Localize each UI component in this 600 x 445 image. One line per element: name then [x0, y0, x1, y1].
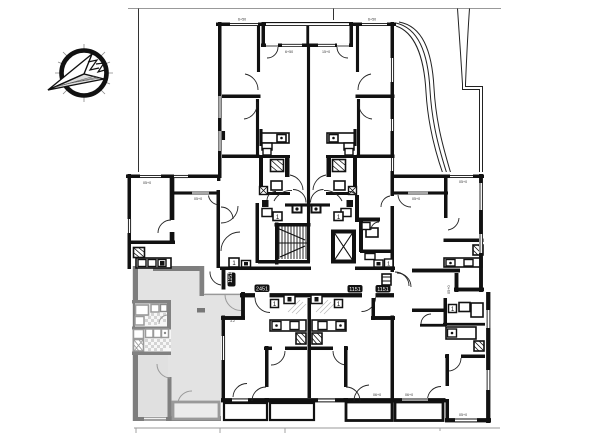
svg-text:1151: 1151 — [228, 272, 234, 283]
svg-text:1151: 1151 — [349, 287, 361, 293]
svg-text:1151: 1151 — [377, 287, 389, 293]
svg-text:2451: 2451 — [256, 287, 268, 293]
svg-text:05+0: 05+0 — [447, 285, 451, 294]
svg-text:05+0: 05+0 — [459, 413, 467, 417]
svg-text:6+50: 6+50 — [368, 18, 376, 22]
svg-text:05+0: 05+0 — [143, 181, 151, 185]
svg-text:05+0: 05+0 — [459, 180, 467, 184]
svg-text:15+0: 15+0 — [322, 50, 330, 54]
svg-text:05+0: 05+0 — [194, 197, 202, 201]
svg-text:3.2: 3.2 — [230, 319, 235, 323]
svg-text:06+0: 06+0 — [405, 393, 413, 397]
svg-text:6+50: 6+50 — [285, 50, 293, 54]
svg-text:6+50: 6+50 — [238, 18, 246, 22]
svg-text:06+0: 06+0 — [373, 393, 381, 397]
svg-text:05+0: 05+0 — [412, 197, 420, 201]
